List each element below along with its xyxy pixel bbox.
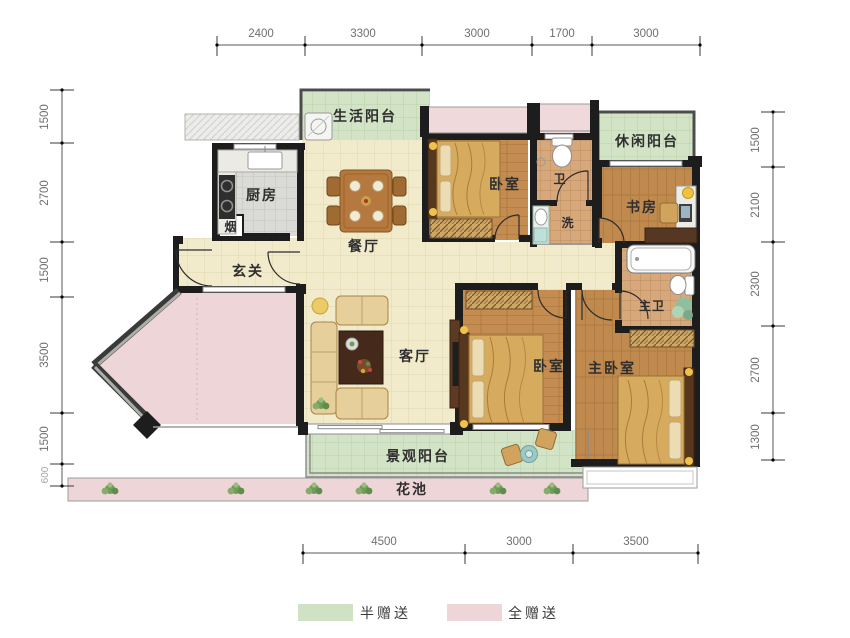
washing-machine-icon bbox=[305, 113, 332, 140]
svg-text:2300: 2300 bbox=[750, 271, 762, 297]
flower-bed-strip bbox=[68, 478, 588, 501]
master-wardrobe-icon bbox=[630, 330, 694, 347]
svg-text:2100: 2100 bbox=[750, 192, 762, 218]
legend-half-label: 半赠送 bbox=[360, 605, 411, 621]
svg-text:2700: 2700 bbox=[39, 180, 51, 206]
label-master-bedroom: 主卧室 bbox=[588, 360, 636, 376]
label-dining: 餐厅 bbox=[347, 238, 380, 254]
label-study: 书房 bbox=[626, 199, 658, 215]
label-living: 客厅 bbox=[398, 348, 431, 364]
label-view-balcony: 景观阳台 bbox=[386, 448, 450, 464]
wardrobe1-icon bbox=[430, 219, 492, 238]
wash-basin-icon bbox=[533, 206, 549, 244]
svg-text:1500: 1500 bbox=[39, 257, 51, 283]
svg-text:1500: 1500 bbox=[39, 104, 51, 130]
svg-text:3000: 3000 bbox=[506, 536, 532, 548]
svg-text:3300: 3300 bbox=[350, 28, 376, 40]
svg-text:1300: 1300 bbox=[750, 424, 762, 450]
label-bath: 卫 bbox=[553, 172, 566, 186]
legend-full-swatch bbox=[447, 604, 502, 621]
svg-text:2700: 2700 bbox=[750, 357, 762, 383]
dimension-left: 1500 2700 1500 3500 1500 600 bbox=[39, 88, 74, 487]
dimension-right: 1500 2100 2300 2700 1300 bbox=[750, 110, 785, 461]
svg-text:3500: 3500 bbox=[39, 342, 51, 368]
equipment-ledge bbox=[185, 114, 299, 140]
svg-text:2400: 2400 bbox=[248, 28, 274, 40]
svg-text:3000: 3000 bbox=[633, 28, 659, 40]
legend-full-label: 全赠送 bbox=[508, 605, 559, 621]
svg-text:3500: 3500 bbox=[623, 536, 649, 548]
label-leisure-balcony: 休闲阳台 bbox=[614, 133, 679, 149]
master-toilet-icon bbox=[670, 276, 694, 296]
svg-text:1500: 1500 bbox=[39, 426, 51, 452]
bathtub-icon bbox=[627, 245, 695, 273]
svg-text:600: 600 bbox=[40, 466, 51, 483]
floorplan-drawing: 生活阳台 厨房 烟 餐厅 卧室 卫 洗 休闲阳台 书房 玄关 客厅 卧室 主卧室… bbox=[0, 0, 850, 638]
svg-text:1700: 1700 bbox=[549, 28, 575, 40]
legend: 半赠送 全赠送 bbox=[298, 604, 559, 621]
floorplan-page: 生活阳台 厨房 烟 餐厅 卧室 卫 洗 休闲阳台 书房 玄关 客厅 卧室 主卧室… bbox=[0, 0, 850, 638]
svg-text:3000: 3000 bbox=[464, 28, 490, 40]
dimension-top: 2400 3300 3000 1700 3000 bbox=[215, 28, 701, 56]
label-entry: 玄关 bbox=[232, 263, 264, 279]
label-master-bath: 主卫 bbox=[639, 298, 665, 313]
label-flower-bed: 花池 bbox=[396, 481, 428, 497]
label-wash: 洗 bbox=[561, 215, 574, 230]
svg-text:1500: 1500 bbox=[750, 127, 762, 153]
label-life-balcony: 生活阳台 bbox=[333, 108, 397, 124]
label-bedroom2: 卧室 bbox=[533, 358, 565, 374]
label-bedroom1: 卧室 bbox=[489, 176, 521, 192]
dimension-bottom: 4500 3000 3500 bbox=[301, 536, 699, 564]
svg-text:4500: 4500 bbox=[371, 536, 397, 548]
wardrobe2-icon bbox=[466, 291, 532, 309]
master-bay-window bbox=[583, 467, 697, 488]
label-kitchen: 厨房 bbox=[246, 187, 278, 203]
label-flue: 烟 bbox=[224, 220, 237, 234]
legend-half-swatch bbox=[298, 604, 353, 621]
